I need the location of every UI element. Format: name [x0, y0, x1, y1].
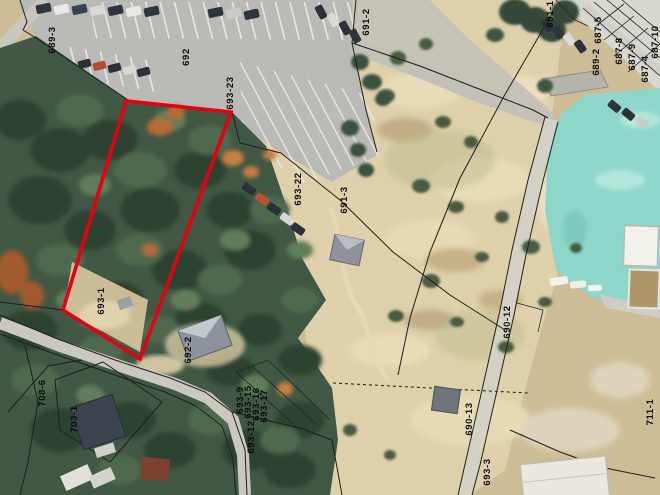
parcel-label-690-12: 690-12 [502, 305, 513, 338]
parcel-label-692: 692 [181, 48, 192, 66]
parcel-label-693-12: 693-12 [246, 420, 257, 453]
parcel-label-708-6: 708-6 [37, 379, 48, 406]
parcel-label-692-2: 692-2 [183, 336, 194, 363]
parcel-label-693-17: 693-17 [259, 389, 270, 422]
parcel-label-689-2: 689-2 [591, 48, 602, 75]
parcel-label-693-1: 693-1 [96, 287, 107, 314]
red-roof-shed [140, 457, 170, 482]
parcel-label-693-22: 693-22 [293, 172, 304, 205]
parcel-label-687-8: 687-8 [614, 37, 625, 64]
brown-building [628, 269, 659, 308]
parcel-label-691-1: 691-1 [545, 0, 556, 27]
white-building [623, 225, 658, 266]
parcel-label-691-3: 691-3 [339, 186, 350, 213]
parcel-label-691-2: 691-2 [361, 8, 372, 35]
golf-shelter [431, 386, 460, 413]
parcel-label-693-3: 693-3 [482, 458, 493, 485]
parcel-label-711-1: 711-1 [645, 399, 656, 426]
parcel-label-690-13: 690-13 [464, 402, 475, 435]
golf-pavilion [330, 234, 365, 266]
parcel-label-687-5: 687-5 [593, 16, 604, 43]
parcel-label-693-23: 693-23 [225, 76, 236, 109]
parcel-label-689-3: 689-3 [47, 26, 58, 53]
parcel-label-687-9: 687-9 [627, 43, 638, 70]
parcel-label-703-1: 703-1 [69, 405, 80, 432]
aerial-cadastral-map[interactable]: 689-3692693-23691-2691-1687-5689-2687-86… [0, 0, 660, 495]
parcel-label-687-10: 687-10 [650, 25, 660, 58]
